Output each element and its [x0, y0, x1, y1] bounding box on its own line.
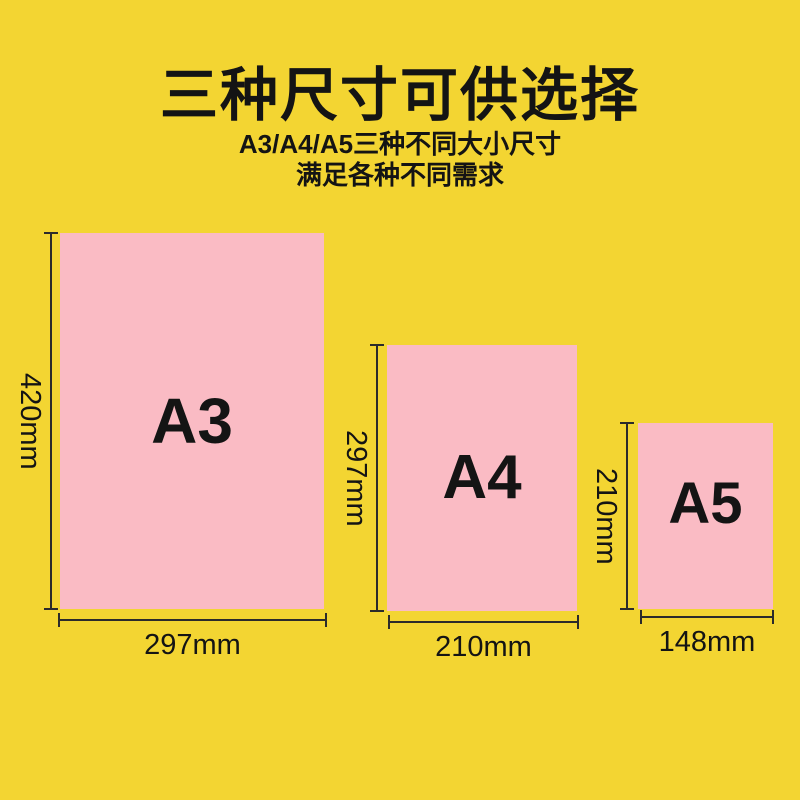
width-dimension-label-a4: 210mm	[389, 631, 578, 664]
height-dimension-line-a5	[626, 423, 628, 609]
subtitle-line-2: 满足各种不同需求	[0, 155, 800, 192]
height-dimension-label-a4: 297mm	[340, 345, 372, 611]
width-dimension-label-a3: 297mm	[59, 629, 326, 662]
height-dimension-line-a3	[50, 233, 52, 609]
paper-size-label-a3: A3	[151, 389, 233, 453]
paper-sheet-a4: A4	[387, 345, 577, 611]
width-dimension-label-a5: 148mm	[621, 626, 793, 659]
page-title: 三种尺寸可供选择	[0, 48, 800, 132]
height-dimension-label-a5: 210mm	[590, 423, 622, 609]
paper-size-label-a5: A5	[668, 475, 742, 533]
width-dimension-line-a3	[59, 619, 326, 621]
height-dimension-label-a3: 420mm	[14, 233, 46, 609]
paper-size-promo-banner: 三种尺寸可供选择 A3/A4/A5三种不同大小尺寸 满足各种不同需求 A3 42…	[0, 0, 800, 800]
height-dimension-line-a4	[376, 345, 378, 611]
paper-sheet-a5: A5	[638, 423, 773, 609]
width-dimension-line-a4	[389, 621, 578, 623]
paper-sheet-a3: A3	[60, 233, 324, 609]
width-dimension-line-a5	[641, 616, 773, 618]
paper-size-label-a4: A4	[442, 447, 521, 509]
